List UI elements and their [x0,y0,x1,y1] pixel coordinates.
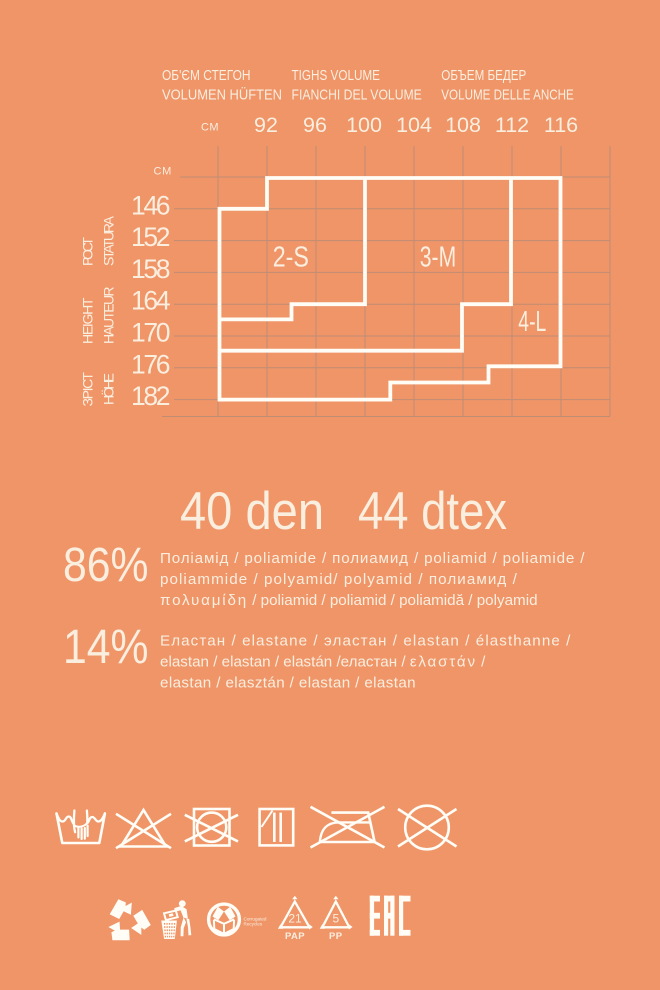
svg-text:21: 21 [288,912,302,926]
svg-text:Еластан / elastane / эластан /: Еластан / elastane / эластан / elastan /… [160,633,571,650]
svg-text:HEIGHT: HEIGHT [79,297,95,344]
svg-text:elastan / elastan / elastán /е: elastan / elastan / elastán /еластан / ε… [160,654,486,671]
svg-text:Поліамід / poliamide / полиами: Поліамід / poliamide / полиамид / poliam… [160,550,585,567]
svg-text:158: 158 [131,254,171,284]
svg-text:164: 164 [131,286,171,316]
svg-text:152: 152 [131,222,171,252]
svg-text:FIANCHI DEL VOLUME: FIANCHI DEL VOLUME [292,86,422,103]
svg-text:СМ: СМ [154,166,173,178]
svg-text:РОСТ: РОСТ [79,237,95,266]
svg-text:ОБ'ЄМ СТЕГОН: ОБ'ЄМ СТЕГОН [162,67,251,84]
svg-text:VOLUME DELLE ANCHE: VOLUME DELLE ANCHE [441,86,574,103]
svg-text:ЗРІСТ: ЗРІСТ [79,372,95,407]
svg-text:100: 100 [346,113,382,137]
svg-text:poliammide / polyamid/ polyami: poliammide / polyamid/ polyamid / полиам… [160,571,518,588]
svg-text:86%: 86% [63,539,149,592]
svg-text:Recycles: Recycles [244,922,263,927]
svg-text:116: 116 [544,113,578,137]
svg-text:5: 5 [332,912,339,926]
svg-text:170: 170 [131,318,171,348]
svg-text:VOLUMEN HÜFTEN: VOLUMEN HÜFTEN [162,85,282,103]
svg-text:44 dtex: 44 dtex [358,482,507,541]
svg-text:2-S: 2-S [273,241,309,273]
svg-text:108: 108 [445,113,481,137]
svg-text:176: 176 [131,349,171,379]
svg-text:3-M: 3-M [420,241,456,273]
svg-text:4-L: 4-L [518,306,546,338]
svg-text:92: 92 [254,113,278,137]
svg-text:СМ: СМ [201,122,219,134]
svg-text:112: 112 [495,113,529,137]
svg-text:PAP: PAP [285,931,305,942]
svg-text:96: 96 [303,113,327,137]
svg-text:TIGHS VOLUME: TIGHS VOLUME [292,67,381,84]
svg-text:HAUTEUR: HAUTEUR [100,287,116,345]
svg-text:HÖHE: HÖHE [99,373,116,405]
svg-text:40 den: 40 den [180,482,324,541]
svg-text:182: 182 [131,381,171,411]
svg-text:STATURA: STATURA [100,215,116,266]
svg-text:PP: PP [329,931,343,942]
svg-text:elastan / elasztán / elastan /: elastan / elasztán / elastan / elastan [160,675,416,692]
svg-text:πολυαμίδη / poliamid / poliami: πολυαμίδη / poliamid / poliamid / poliam… [160,592,538,609]
svg-text:146: 146 [131,190,171,220]
svg-text:14%: 14% [63,621,149,674]
svg-text:104: 104 [396,113,432,137]
svg-text:ОБЪЕМ БЕДЕР: ОБЪЕМ БЕДЕР [441,67,526,84]
